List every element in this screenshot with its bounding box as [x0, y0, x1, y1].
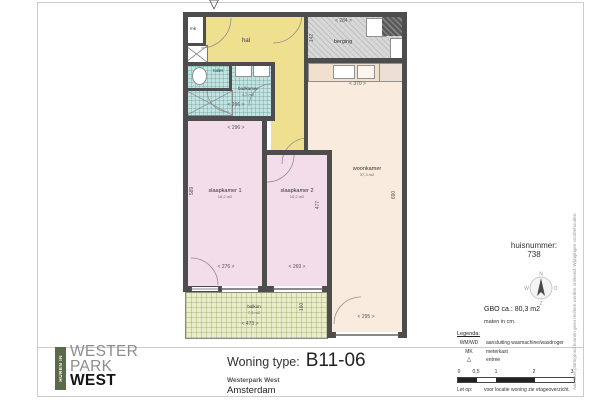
label-berging: berging: [313, 39, 373, 45]
entry-arrow-icon: ▽: [209, 0, 219, 10]
gbo-value: GBO ca.: 80,3 m2: [484, 306, 540, 313]
dim-berging-width: < 284 >: [321, 18, 366, 24]
scale-segment: [477, 378, 496, 382]
woning-type-label: Woning type:: [227, 355, 300, 369]
title-block: Woning type:B11-06 Westerpark West Amste…: [227, 350, 366, 396]
dim-woonkamer-width: < 295 >: [345, 314, 387, 320]
compass-o: O: [554, 286, 558, 292]
label-woonkamer: woonkamer 37,3 m2: [332, 166, 402, 178]
dim-slaapkamer1-depth: 589: [189, 176, 195, 206]
wall: [262, 121, 267, 286]
scale-tick-2: 2: [533, 369, 536, 375]
entree-triangle-icon: △: [455, 356, 483, 363]
wall: [183, 43, 206, 46]
label-balkon: balkon 7,5 m2: [219, 304, 289, 316]
label-badkamer: badkamer 4,2 m2: [225, 86, 271, 98]
label-mk: mk: [184, 26, 202, 32]
dim-slaapkamer-top-width: < 296 >: [216, 125, 256, 131]
huisnummer-label: huisnummer:: [498, 241, 570, 250]
note-text: voor locatie woning zie etageoverzicht.: [484, 387, 570, 393]
scale-segment: [496, 378, 535, 382]
scale-segment: [458, 378, 477, 382]
wall: [262, 150, 332, 155]
window-slaapkamer-1: [221, 286, 259, 292]
window-slaapkamer-2: [273, 286, 323, 292]
scale-bar: [457, 377, 575, 383]
logo: HUREN IN WESTER PARK WEST: [55, 344, 225, 394]
legend-desc-entree: entree: [486, 357, 500, 363]
logo-tagline: HUREN IN: [58, 355, 63, 382]
scale-tick-1: 1: [495, 369, 498, 375]
window-woonkamer: [335, 332, 399, 338]
floor-plan: ▽ hal mk berging toilet badkamer 4,2 m2 …: [183, 6, 407, 344]
legend-key-mk: MK: [455, 349, 483, 355]
balcony-door-opening: [191, 287, 219, 291]
dim-woonkamer-depth: 690: [391, 180, 397, 210]
wall: [271, 62, 275, 121]
scale-tick-05: 0,5: [473, 369, 480, 375]
units-note: maten in cm.: [484, 319, 515, 325]
logo-green-bar: HUREN IN: [55, 347, 66, 390]
note-label: Let op:: [457, 387, 472, 393]
dim-balkon-width: < 473 >: [229, 321, 271, 327]
dim-balkon-depth: 160: [299, 292, 305, 322]
disclaimer-vertical-text: Aan deze plattegrond kunnen geen rechten…: [572, 165, 577, 390]
label-hal: hal: [221, 38, 271, 44]
compass-w: W: [524, 286, 529, 292]
legend-desc-mk: meterkast: [486, 349, 508, 355]
wall: [327, 150, 332, 338]
dim-badkamer-width: < 296 >: [216, 102, 256, 108]
wall: [304, 58, 407, 63]
dim-slaapkamer2-depth: 477: [315, 190, 321, 220]
dim-slaapkamer1-width: < 276 >: [206, 264, 246, 270]
compass-n: N: [539, 272, 543, 278]
label-toilet: toilet: [205, 68, 231, 74]
logo-wordmark: WESTER PARK WEST: [70, 345, 138, 389]
legend-desc-wmwd: aansluiting wasmachine/wasdroger: [486, 340, 564, 346]
legend-title: Legenda:: [457, 331, 480, 337]
woning-type-code: B11-06: [306, 350, 366, 371]
dim-berging-depth: 142: [309, 23, 315, 53]
project-name: Westerpark West: [227, 377, 366, 384]
wall: [203, 12, 206, 45]
city-name: Amsterdam: [227, 385, 366, 396]
compass-rose-icon: N O Z W: [524, 268, 558, 306]
dim-kitchen-width: < 370 >: [335, 81, 380, 87]
huisnummer-block: huisnummer: 738: [498, 241, 570, 259]
wall: [183, 12, 188, 292]
wall: [183, 12, 407, 17]
scale-segment: [535, 378, 574, 382]
scale-tick-0: 0: [458, 369, 461, 375]
wall: [304, 12, 308, 155]
wall: [229, 62, 232, 88]
logo-line-3: WEST: [70, 374, 138, 389]
huisnummer-value: 738: [498, 250, 570, 259]
legend-key-wmwd: WM/WD: [455, 340, 483, 346]
label-slaapkamer-1: slaapkamer 1 16,2 m2: [188, 188, 262, 200]
dim-slaapkamer2-width: < 269 >: [277, 264, 317, 270]
